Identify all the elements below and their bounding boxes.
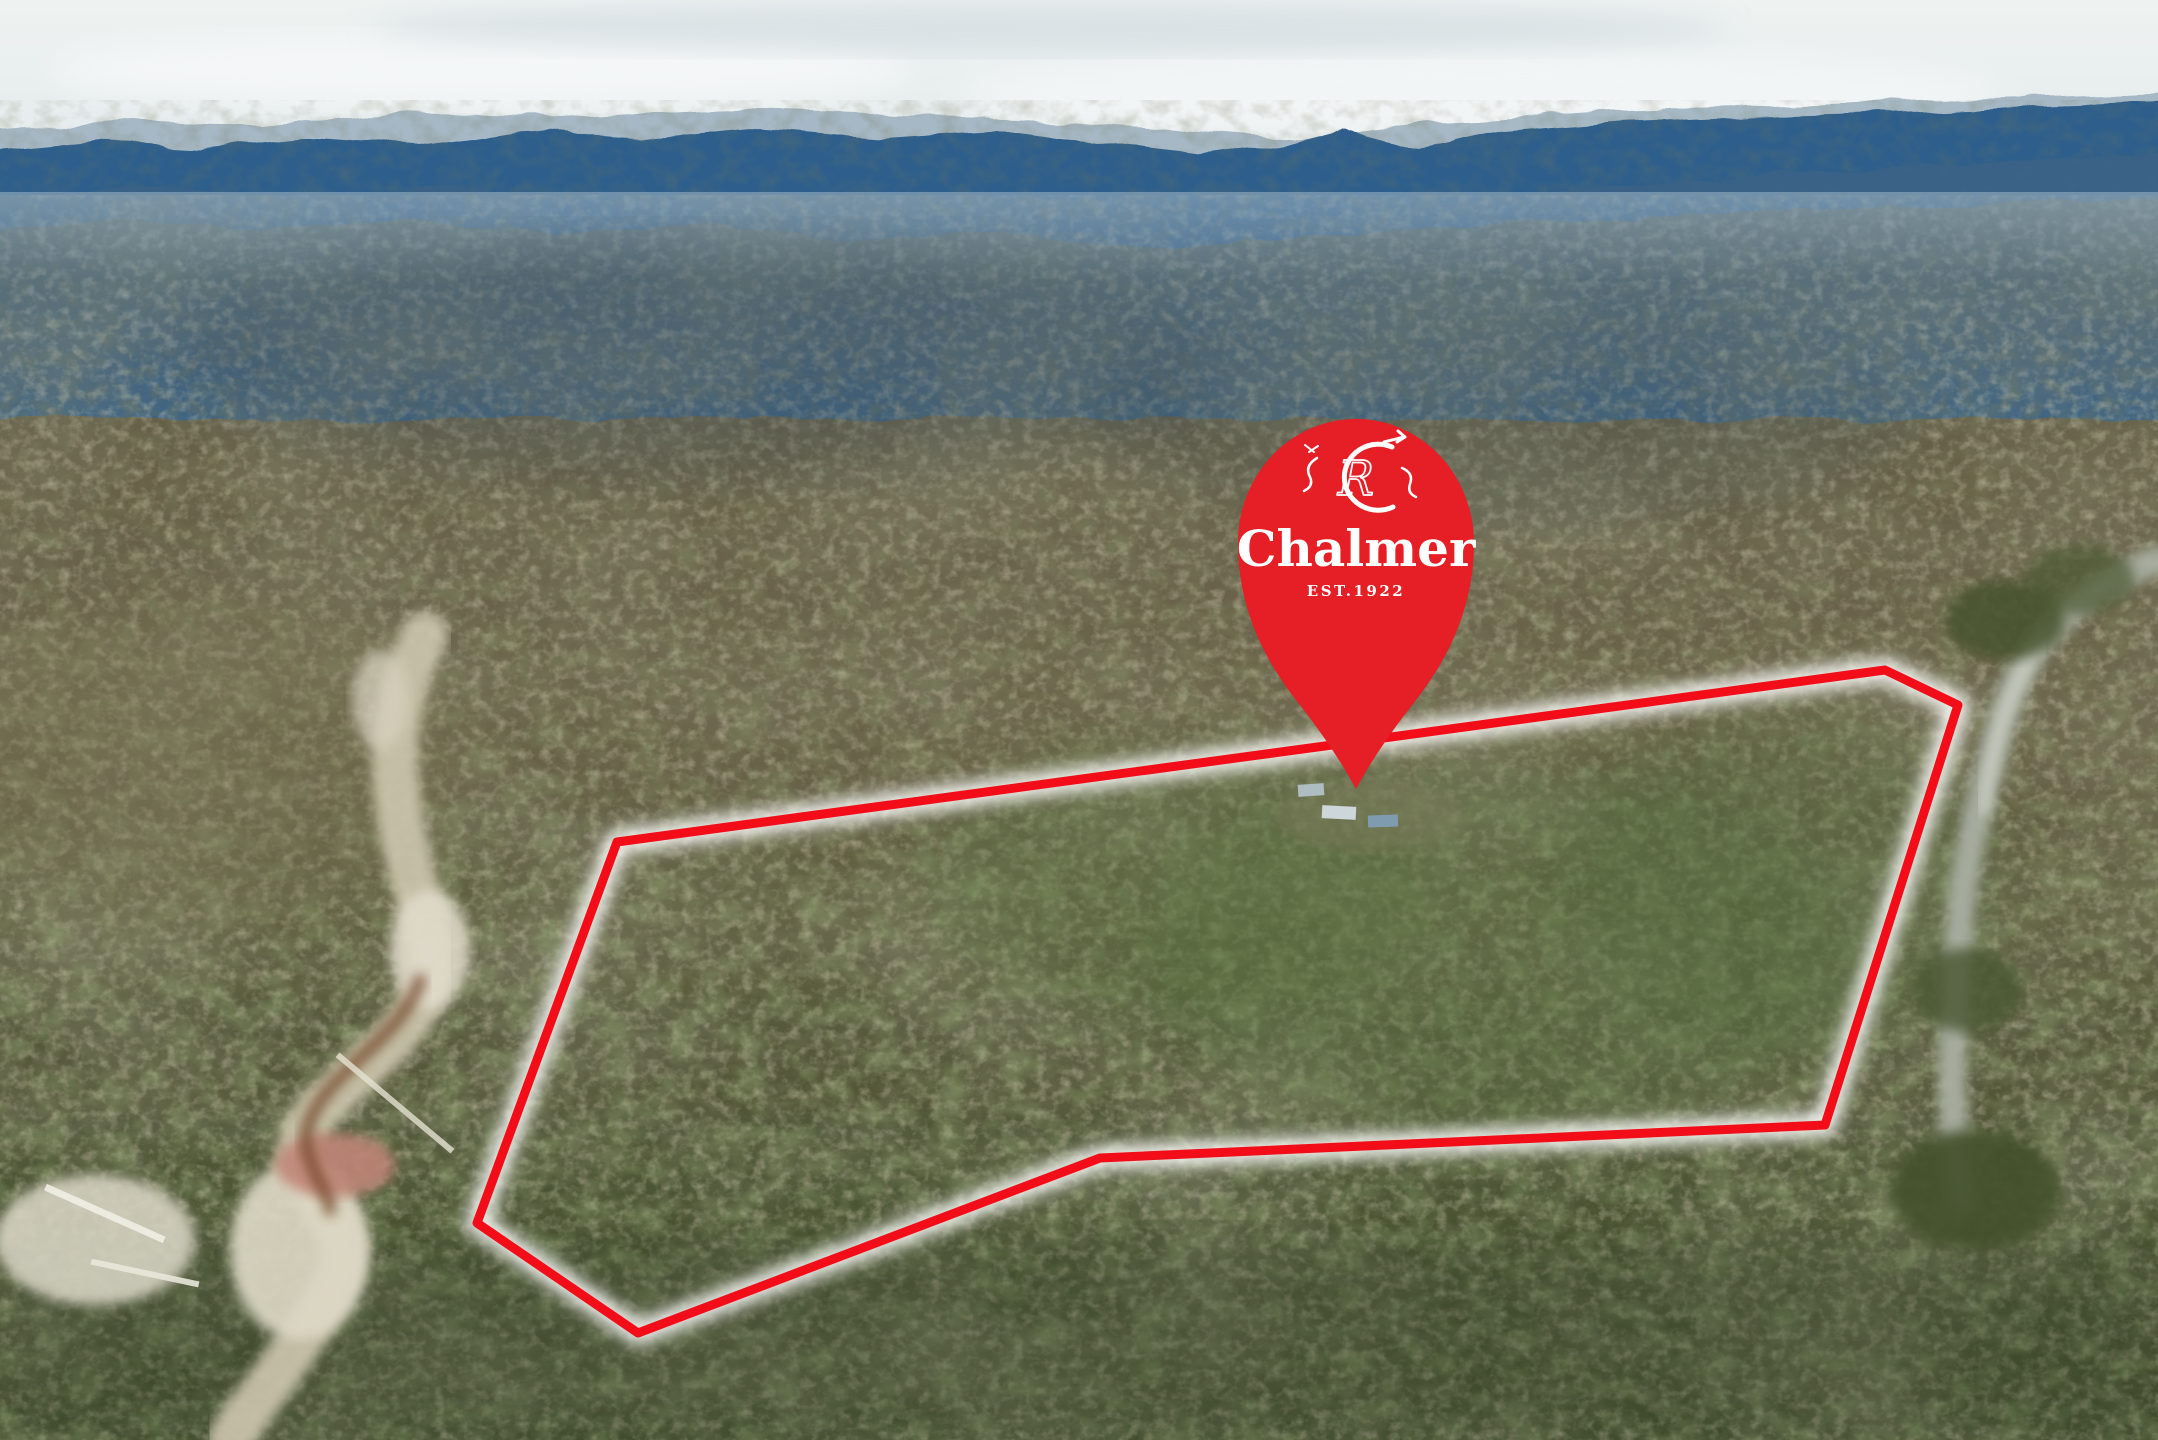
- tree-over-road: [1913, 948, 2023, 1032]
- dark-forest-patch: [1080, 300, 1920, 520]
- fallen-logs-area: [0, 1175, 195, 1305]
- creek-rocks: [390, 890, 470, 1010]
- pin-brand-name: Chalmer: [1237, 519, 1476, 578]
- horizon-haze-light: [0, 192, 2158, 282]
- shed-roof: [1368, 814, 1398, 827]
- shed-roof: [1298, 783, 1325, 797]
- creek-rocks: [352, 650, 408, 750]
- shed-roof: [1322, 805, 1357, 820]
- pin-established-text: EST.1922: [1307, 582, 1405, 600]
- tree-over-road: [2025, 545, 2135, 615]
- svg-text:R: R: [1337, 451, 1374, 507]
- creek-pool-pink: [275, 1133, 395, 1197]
- dark-forest-patch: [180, 240, 1220, 480]
- tree-over-road: [1890, 1130, 2060, 1250]
- homestead-clearing: [1275, 780, 1465, 850]
- cloud: [370, 2, 1730, 54]
- aerial-property-photo: R Chalmer EST.1922: [0, 0, 2158, 1440]
